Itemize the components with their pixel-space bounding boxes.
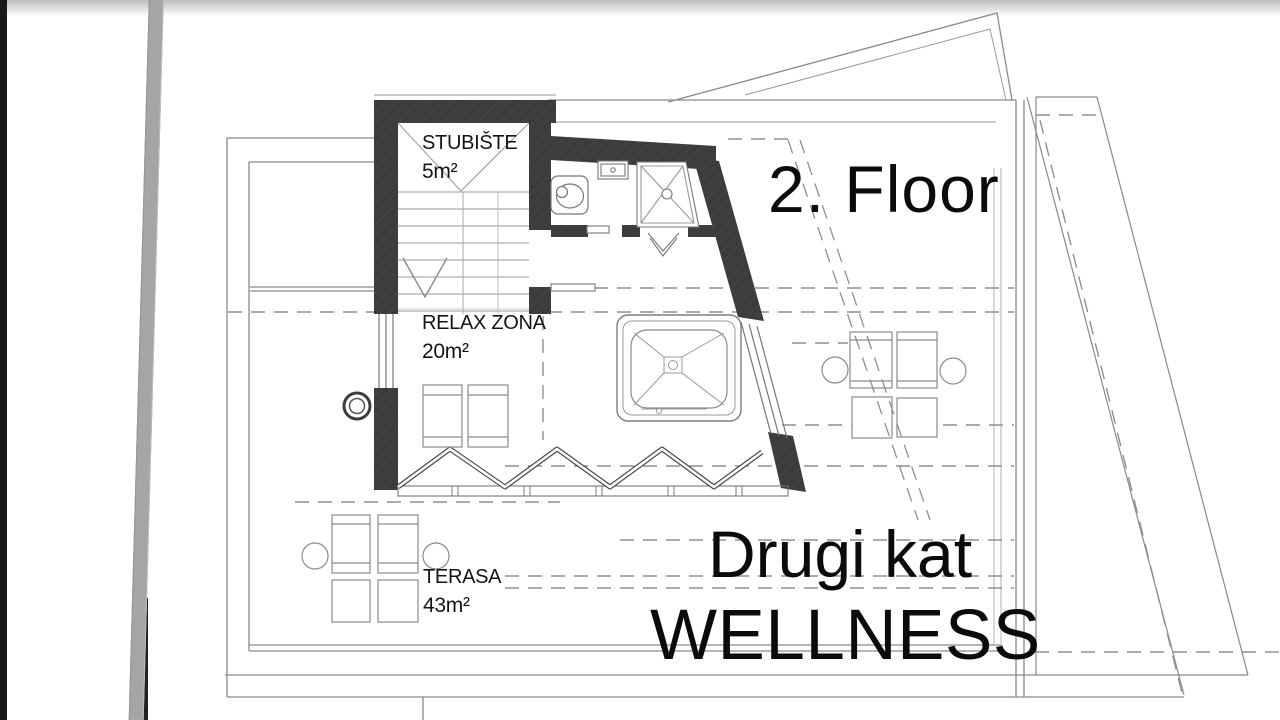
left-edge-bar — [0, 0, 7, 720]
room-name: TERASA — [423, 564, 501, 590]
room-area: 5m² — [422, 159, 517, 185]
room-label-relax-zona: RELAX ZONA 20m² — [422, 310, 546, 365]
toilet — [551, 176, 588, 214]
room-label-stubiste: STUBIŠTE 5m² — [422, 130, 517, 185]
jacuzzi — [617, 315, 741, 421]
sink — [598, 161, 628, 179]
roof-trapezoid — [1027, 97, 1248, 695]
relax-loungers — [423, 385, 508, 447]
terrace-furniture-right — [822, 332, 966, 438]
page-top-shadow — [7, 0, 1280, 16]
floorplan-drawing — [0, 0, 1280, 720]
room-name: STUBIŠTE — [422, 130, 517, 156]
shower-stall — [637, 162, 699, 227]
floor-label-hr: Drugi kat — [708, 521, 972, 587]
wall-column-ring — [344, 393, 370, 419]
room-name: RELAX ZONA — [422, 310, 546, 336]
floor-label-en: 2. Floor — [768, 156, 1000, 222]
screenshot-root: STUBIŠTE 5m² RELAX ZONA 20m² TERASA 43m²… — [0, 0, 1280, 720]
room-area: 43m² — [423, 593, 501, 619]
folding-glass-wall — [398, 449, 788, 496]
room-label-terasa: TERASA 43m² — [423, 564, 501, 619]
zone-label-wellness: WELLNESS — [650, 600, 1041, 671]
room-area: 20m² — [422, 339, 546, 365]
